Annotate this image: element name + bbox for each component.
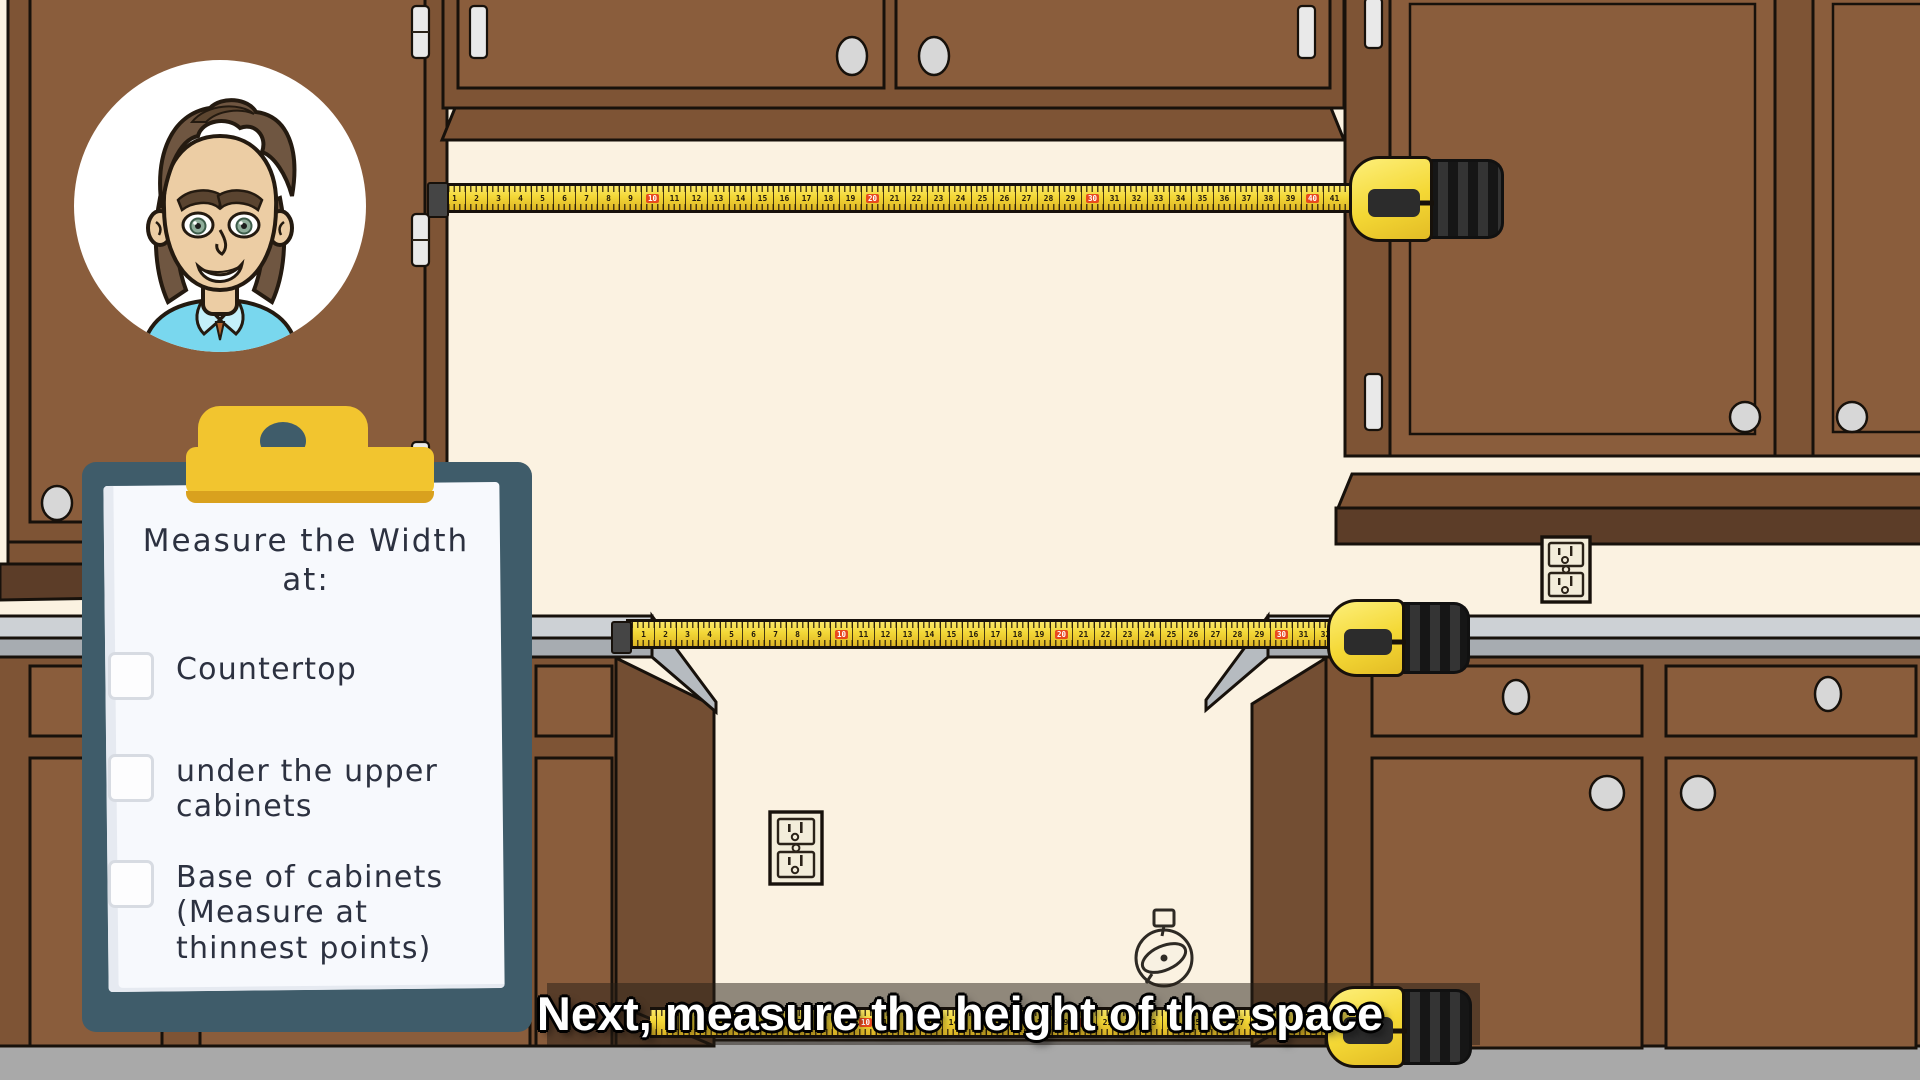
tape-tick: 18	[1006, 622, 1028, 646]
upper-cabinet-middle	[442, 0, 1344, 140]
tape-tick: 30	[1270, 622, 1292, 646]
tape-tick: 14	[729, 186, 751, 210]
tape-tick: 33	[1147, 186, 1169, 210]
tape-tick: 31	[1103, 186, 1125, 210]
tape-tick: 15	[751, 186, 773, 210]
tape-tick: 3	[487, 186, 509, 210]
tape-case-clip	[1368, 189, 1420, 217]
tape-measure-top: 1234567891011121314151617181920212223242…	[437, 183, 1352, 213]
tape-tick: 7	[575, 186, 597, 210]
drawer-front	[536, 666, 612, 736]
tape-tick: 5	[720, 622, 742, 646]
tape-tick: 6	[742, 622, 764, 646]
tape-tick: 29	[1248, 622, 1270, 646]
narrator-avatar	[72, 58, 368, 354]
empty-checkbox	[108, 860, 154, 908]
tape-tick: 27	[1204, 622, 1226, 646]
tape-tick: 7	[764, 622, 786, 646]
tape-tick: 36	[1213, 186, 1235, 210]
tape-tick: 28	[1037, 186, 1059, 210]
tape-tick: 12	[874, 622, 896, 646]
tape-measure-middle: 1234567891011121314151617181920212223242…	[626, 619, 1332, 649]
hinge	[1298, 6, 1315, 58]
drawer-front	[1666, 666, 1916, 736]
checklist-title: Measure the Width at:	[112, 522, 500, 600]
tape-tick: 12	[685, 186, 707, 210]
tape-tick: 34	[1169, 186, 1191, 210]
tape-tick: 31	[1292, 622, 1314, 646]
tape-tick: 16	[773, 186, 795, 210]
tape-tick: 39	[1279, 186, 1301, 210]
tape-tick: 30	[1081, 186, 1103, 210]
clipboard: Measure the Width at: Countertop under t…	[82, 462, 532, 1032]
drawer-knob	[1503, 680, 1529, 714]
tape-tick: 2	[465, 186, 487, 210]
tape-tick: 38	[1257, 186, 1279, 210]
tape-tick: 8	[786, 622, 808, 646]
cabinet-door	[1813, 0, 1920, 456]
door-knob	[919, 37, 949, 75]
tape-tick: 32	[1125, 186, 1147, 210]
cabinet-door	[896, 0, 1330, 88]
caption-text: Next, measure the height of the space	[380, 986, 1540, 1041]
tape-tick: 23	[1116, 622, 1138, 646]
tape-tick: 35	[1191, 186, 1213, 210]
checklist-item-under-upper-cabinets: under the upper cabinets	[108, 754, 486, 825]
tape-tick: 18	[817, 186, 839, 210]
tape-tick: 24	[1138, 622, 1160, 646]
tape-tick: 19	[839, 186, 861, 210]
tape-tick: 22	[905, 186, 927, 210]
tape-tick: 16	[962, 622, 984, 646]
tape-tick: 28	[1226, 622, 1248, 646]
tape-tick: 37	[1235, 186, 1257, 210]
tape-tick: 17	[795, 186, 817, 210]
tape-tick: 11	[663, 186, 685, 210]
tape-tick: 13	[707, 186, 729, 210]
hinge	[1365, 374, 1382, 430]
cabinet-door	[458, 0, 884, 88]
empty-checkbox	[108, 652, 154, 700]
tape-tick: 19	[1028, 622, 1050, 646]
tape-tick: 26	[1182, 622, 1204, 646]
tape-tick: 4	[698, 622, 720, 646]
tape-tick: 26	[993, 186, 1015, 210]
drawer-knob	[1815, 677, 1841, 711]
tape-hook	[611, 621, 632, 654]
tape-tick: 29	[1059, 186, 1081, 210]
tape-case-clip	[1344, 629, 1392, 655]
tape-tick: 15	[940, 622, 962, 646]
tape-tick: 9	[808, 622, 830, 646]
tape-tick: 2	[654, 622, 676, 646]
tape-tick: 10	[641, 186, 663, 210]
power-outlet-lower	[770, 812, 822, 884]
tape-tick: 27	[1015, 186, 1037, 210]
tape-tick: 4	[509, 186, 531, 210]
door-knob	[1681, 776, 1715, 810]
door-knob	[1837, 402, 1867, 432]
checklist-item-countertop: Countertop	[108, 652, 486, 700]
tape-tick: 13	[896, 622, 918, 646]
tape-tick: 17	[984, 622, 1006, 646]
tape-tick: 24	[949, 186, 971, 210]
tape-tick: 25	[1160, 622, 1182, 646]
tape-tick: 14	[918, 622, 940, 646]
tape-tick: 21	[883, 186, 905, 210]
tape-tick: 8	[597, 186, 619, 210]
tape-case-middle	[1327, 599, 1470, 677]
tape-tick: 1	[632, 622, 654, 646]
door-knob	[1590, 776, 1624, 810]
tape-tick: 5	[531, 186, 553, 210]
tape-tick: 22	[1094, 622, 1116, 646]
tape-tick: 23	[927, 186, 949, 210]
tape-tick: 21	[1072, 622, 1094, 646]
hinge	[1365, 0, 1382, 48]
checklist-item-base-of-cabinets: Base of cabinets (Measure at thinnest po…	[108, 860, 486, 966]
door-knob	[42, 486, 72, 520]
video-frame: 1234567891011121314151617181920212223242…	[0, 0, 1920, 1080]
tape-tick: 41	[1323, 186, 1345, 210]
door-knob	[837, 37, 867, 75]
power-outlet-upper	[1542, 537, 1590, 602]
dish-icon	[1126, 906, 1202, 992]
tape-case-top	[1349, 156, 1504, 242]
tape-tick: 6	[553, 186, 575, 210]
tape-tick: 3	[676, 622, 698, 646]
tape-tick: 9	[619, 186, 641, 210]
tape-tick: 20	[1050, 622, 1072, 646]
tape-tick: 11	[852, 622, 874, 646]
tape-tick: 20	[861, 186, 883, 210]
hinge	[470, 6, 487, 58]
door-knob	[1730, 402, 1760, 432]
empty-checkbox	[108, 754, 154, 802]
tape-tick: 40	[1301, 186, 1323, 210]
tape-tick: 10	[830, 622, 852, 646]
tape-hook	[427, 182, 449, 218]
tape-tick: 25	[971, 186, 993, 210]
